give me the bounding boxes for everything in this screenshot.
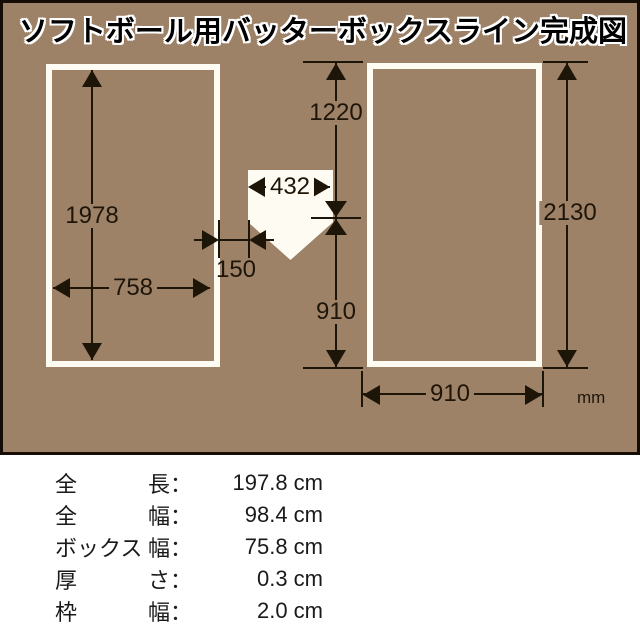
spec-table: 全 長： 197.8 cm 全 幅： 98.4 cm ボックス 幅： 75.8 …: [55, 467, 455, 627]
right-batter-box: [367, 63, 542, 367]
arrow-down-icon: [557, 350, 577, 367]
arrow-left-icon: [363, 385, 380, 405]
dim-910-label: 910: [312, 300, 360, 324]
arrow-left-icon: [248, 177, 265, 197]
dim-910-bottom-tick: [303, 367, 363, 369]
arrow-right-icon: [202, 230, 219, 250]
arrow-left-icon: [53, 278, 70, 298]
spec-item-label: 厚: [55, 563, 148, 595]
arrow-down-icon: [325, 201, 347, 217]
arrow-up-icon: [326, 63, 346, 80]
dim-150-line: [219, 239, 249, 241]
arrow-down-icon: [326, 350, 346, 367]
dim-150-label: 150: [212, 258, 260, 282]
spec-attr-label: 幅：: [148, 531, 206, 563]
diagram-canvas: ソフトボール用バッターボックスライン完成図 1978 758 150 432 1…: [0, 0, 640, 640]
dim-150-tail-right: [265, 239, 274, 241]
arrow-right-icon: [525, 385, 542, 405]
spec-value: 0.3 cm: [206, 566, 323, 592]
spec-value: 75.8 cm: [206, 534, 323, 560]
dim-432-label: 432: [266, 175, 314, 199]
dim-1220-label: 1220: [305, 101, 366, 125]
spec-value: 98.4 cm: [206, 502, 323, 528]
spec-value: 197.8 cm: [206, 470, 323, 496]
spec-item-label: 枠: [55, 595, 148, 627]
table-row: 全 長： 197.8 cm: [55, 467, 455, 499]
dim-1220-line: [335, 62, 337, 217]
spec-item-label: ボックス: [55, 531, 148, 563]
dim-2130-label: 2130: [539, 201, 600, 225]
arrow-left-icon: [249, 230, 266, 250]
arrow-right-icon: [193, 278, 210, 298]
spec-item-label: 全: [55, 499, 148, 531]
dim-758-label: 758: [109, 276, 157, 300]
dim-910w-tick-right: [542, 371, 544, 407]
table-row: ボックス 幅： 75.8 cm: [55, 531, 455, 563]
arrow-up-icon: [82, 70, 102, 87]
spec-value: 2.0 cm: [206, 598, 323, 624]
table-row: 厚 さ： 0.3 cm: [55, 563, 455, 595]
spec-attr-label: 幅：: [148, 499, 206, 531]
page-title: ソフトボール用バッターボックスライン完成図: [3, 8, 640, 50]
table-row: 枠 幅： 2.0 cm: [55, 595, 455, 627]
arrow-up-icon: [325, 219, 347, 235]
dim-910-line: [335, 219, 337, 367]
dim-910w-label: 910: [426, 382, 474, 406]
spec-attr-label: さ：: [148, 563, 206, 595]
table-row: 全 幅： 98.4 cm: [55, 499, 455, 531]
arrow-up-icon: [557, 63, 577, 80]
dim-2130-bottom-tick: [543, 367, 588, 369]
arrow-down-icon: [82, 343, 102, 360]
spec-attr-label: 長：: [148, 467, 206, 499]
arrow-right-icon: [313, 177, 330, 197]
unit-label: mm: [577, 388, 605, 408]
spec-attr-label: 幅：: [148, 595, 206, 627]
dim-1978-label: 1978: [61, 204, 122, 228]
spec-item-label: 全: [55, 467, 148, 499]
